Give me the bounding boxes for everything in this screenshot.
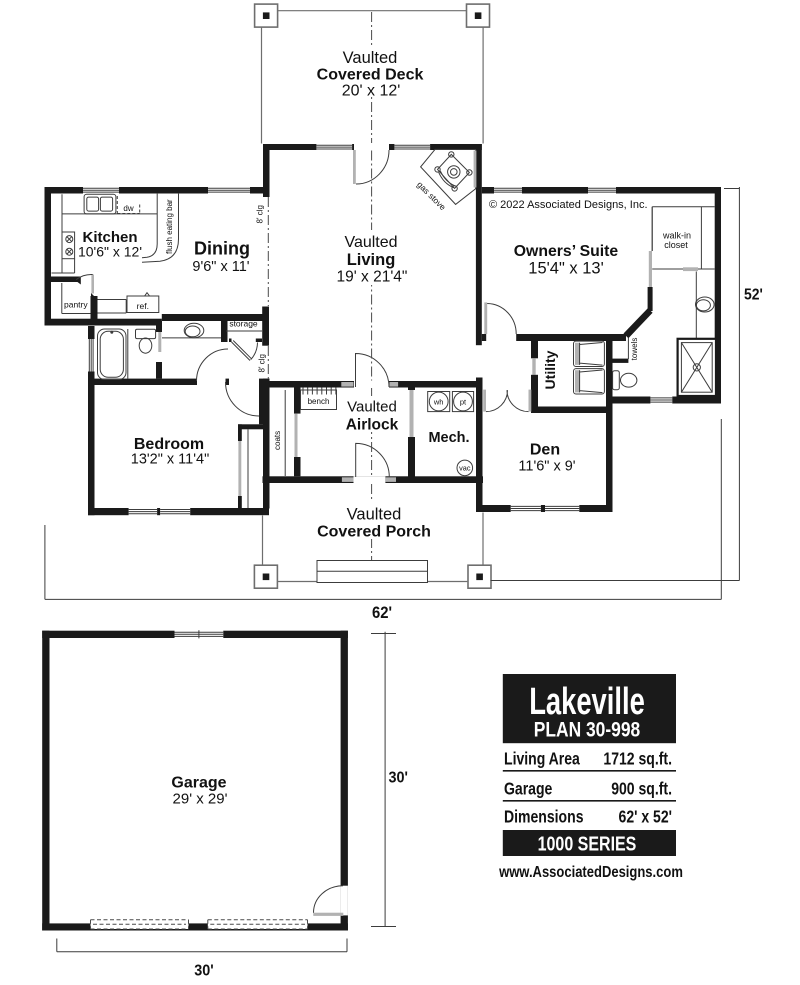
svg-text:10'6" x 12': 10'6" x 12' bbox=[78, 244, 142, 260]
svg-text:1000 SERIES: 1000 SERIES bbox=[538, 833, 637, 855]
svg-text:Dining: Dining bbox=[194, 239, 250, 259]
svg-text:Garage: Garage bbox=[504, 779, 552, 799]
svg-text:30': 30' bbox=[194, 962, 213, 980]
svg-text:29' x 29': 29' x 29' bbox=[173, 791, 228, 808]
svg-text:62': 62' bbox=[372, 604, 392, 622]
svg-text:Vaulted: Vaulted bbox=[344, 234, 397, 251]
svg-text:9'6" x 11': 9'6" x 11' bbox=[192, 259, 249, 275]
svg-text:closet: closet bbox=[664, 240, 688, 250]
svg-text:walk-in: walk-in bbox=[662, 231, 691, 241]
svg-text:Vaulted: Vaulted bbox=[343, 49, 398, 67]
svg-text:towels: towels bbox=[630, 338, 639, 361]
svg-text:Bedroom: Bedroom bbox=[134, 436, 204, 453]
svg-text:13'2" x 11'4": 13'2" x 11'4" bbox=[131, 452, 209, 468]
svg-text:8' clg: 8' clg bbox=[256, 205, 265, 223]
svg-text:19' x 21'4": 19' x 21'4" bbox=[337, 269, 408, 286]
svg-text:Mech.: Mech. bbox=[428, 430, 469, 446]
svg-text:ref.: ref. bbox=[137, 301, 149, 311]
svg-text:PLAN 30-998: PLAN 30-998 bbox=[534, 719, 641, 742]
svg-text:storage: storage bbox=[229, 319, 258, 329]
svg-text:Lakeville: Lakeville bbox=[529, 681, 645, 723]
svg-text:900 sq.ft.: 900 sq.ft. bbox=[611, 779, 672, 799]
svg-text:Covered Porch: Covered Porch bbox=[317, 524, 431, 541]
svg-text:coats: coats bbox=[273, 431, 282, 450]
svg-text:Garage: Garage bbox=[171, 775, 226, 792]
svg-text:pantry: pantry bbox=[64, 300, 88, 310]
svg-text:62' x 52': 62' x 52' bbox=[619, 807, 672, 827]
svg-text:Dimensions: Dimensions bbox=[504, 807, 584, 827]
svg-text:flush eating bar: flush eating bar bbox=[165, 199, 174, 254]
svg-text:1712 sq.ft.: 1712 sq.ft. bbox=[603, 749, 672, 769]
svg-text:vac: vac bbox=[459, 464, 471, 473]
svg-text:dw: dw bbox=[123, 204, 133, 213]
svg-text:Den: Den bbox=[530, 442, 560, 459]
svg-text:11'6" x 9': 11'6" x 9' bbox=[518, 459, 575, 475]
svg-text:8' clg: 8' clg bbox=[258, 354, 267, 372]
svg-text:Vaulted: Vaulted bbox=[347, 506, 402, 524]
svg-text:wh: wh bbox=[433, 397, 444, 406]
svg-text:20' x 12': 20' x 12' bbox=[342, 83, 401, 100]
svg-text:Covered Deck: Covered Deck bbox=[317, 67, 424, 84]
svg-text:www.AssociatedDesigns.com: www.AssociatedDesigns.com bbox=[498, 864, 683, 881]
svg-text:52': 52' bbox=[744, 287, 763, 304]
svg-text:Living: Living bbox=[347, 251, 396, 269]
svg-text:Airlock: Airlock bbox=[346, 417, 399, 434]
svg-text:Vaulted: Vaulted bbox=[347, 399, 397, 416]
svg-text:© 2022 Associated Designs, Inc: © 2022 Associated Designs, Inc. bbox=[489, 199, 648, 211]
svg-text:30': 30' bbox=[389, 769, 408, 787]
svg-text:15'4" x 13': 15'4" x 13' bbox=[528, 260, 603, 278]
svg-text:pt: pt bbox=[460, 397, 467, 406]
svg-text:bench: bench bbox=[308, 397, 330, 406]
svg-text:Living Area: Living Area bbox=[504, 749, 581, 769]
svg-text:Utility: Utility bbox=[542, 350, 558, 389]
svg-text:Owners’ Suite: Owners’ Suite bbox=[514, 243, 619, 260]
